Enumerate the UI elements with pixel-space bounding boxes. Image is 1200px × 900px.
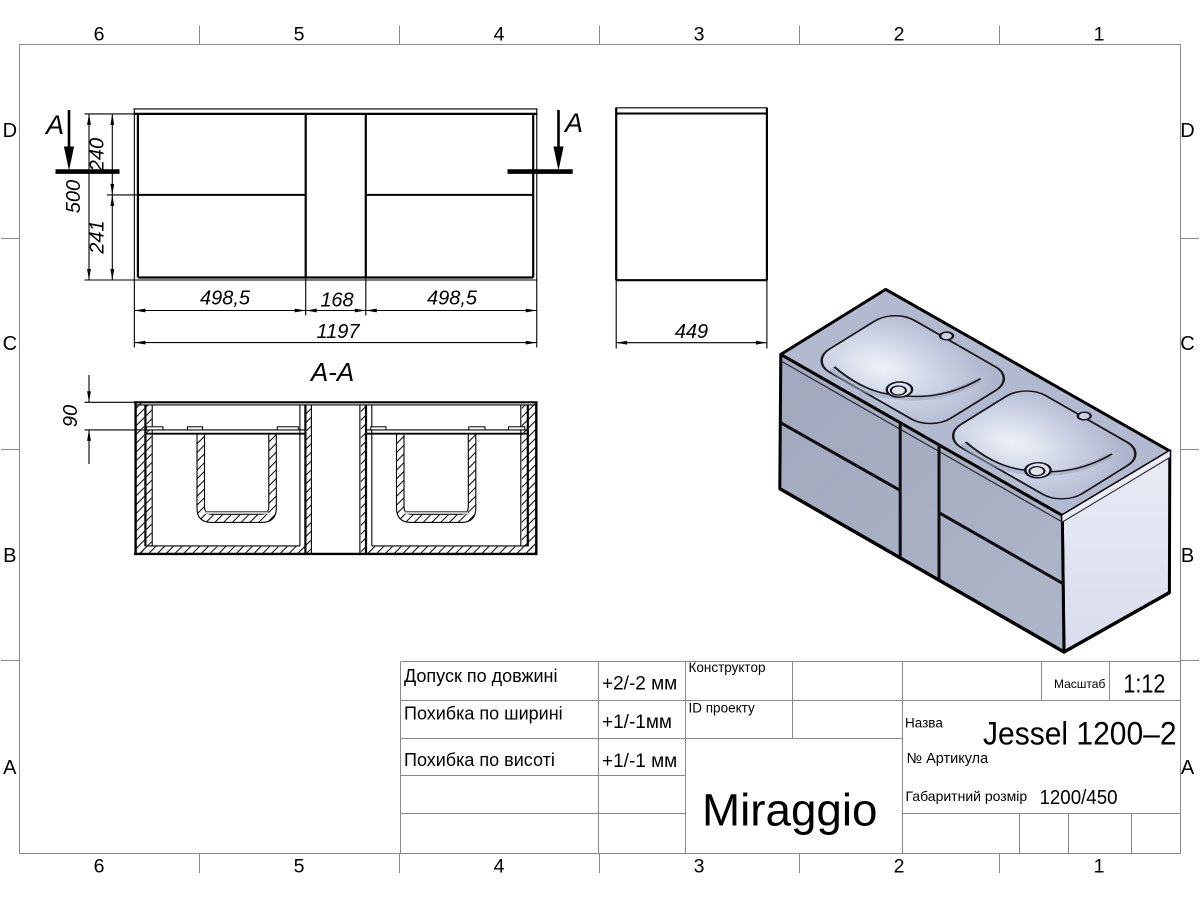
svg-text:Похибка по висоті: Похибка по висоті [404,750,555,770]
svg-text:B: B [3,545,16,567]
svg-text:D: D [3,120,17,142]
svg-text:240: 240 [86,138,108,172]
svg-text:2: 2 [894,856,905,878]
svg-text:A: A [44,110,64,140]
svg-text:90: 90 [60,405,82,427]
svg-text:Масштаб: Масштаб [1054,677,1105,691]
svg-text:6: 6 [94,856,105,878]
svg-text:1: 1 [1094,24,1105,46]
svg-text:№ Артикула: № Артикула [907,751,990,767]
svg-text:3: 3 [694,856,705,878]
svg-text:449: 449 [675,321,708,343]
svg-text:1: 1 [1094,856,1105,878]
svg-text:C: C [3,333,17,355]
svg-text:168: 168 [320,290,353,312]
svg-text:C: C [1180,333,1194,355]
svg-text:Конструктор: Конструктор [689,660,766,675]
svg-text:5: 5 [294,856,305,878]
svg-text:498,5: 498,5 [427,288,478,310]
svg-text:+2/-2 мм: +2/-2 мм [602,674,677,695]
svg-text:B: B [1181,545,1194,567]
svg-text:A: A [3,757,17,779]
svg-text:Габаритний розмір: Габаритний розмір [906,788,1028,804]
svg-text:D: D [1180,120,1194,142]
svg-text:500: 500 [63,180,85,213]
svg-text:4: 4 [494,856,505,878]
svg-text:1:12: 1:12 [1123,670,1165,698]
svg-text:Miraggio: Miraggio [702,784,878,835]
svg-text:1200/450: 1200/450 [1040,787,1118,809]
svg-text:ID проекту: ID проекту [689,701,755,716]
svg-text:Jessel 1200–2: Jessel 1200–2 [983,715,1177,751]
svg-text:A-A: A-A [309,357,354,387]
svg-text:Назва: Назва [905,716,943,731]
svg-text:5: 5 [294,24,305,46]
svg-text:1197: 1197 [316,321,360,343]
svg-text:+1/-1 мм: +1/-1 мм [602,751,677,772]
svg-text:241: 241 [86,220,108,254]
svg-text:A: A [563,108,583,138]
svg-text:Похибка по ширині: Похибка по ширині [404,704,563,724]
svg-text:2: 2 [894,24,905,46]
svg-text:Допуск по довжині: Допуск по довжині [404,666,558,686]
svg-text:3: 3 [694,24,705,46]
svg-text:498,5: 498,5 [200,288,251,310]
svg-text:4: 4 [494,24,505,46]
svg-text:6: 6 [94,24,105,46]
svg-text:A: A [1181,757,1195,779]
svg-text:+1/-1мм: +1/-1мм [602,712,672,733]
